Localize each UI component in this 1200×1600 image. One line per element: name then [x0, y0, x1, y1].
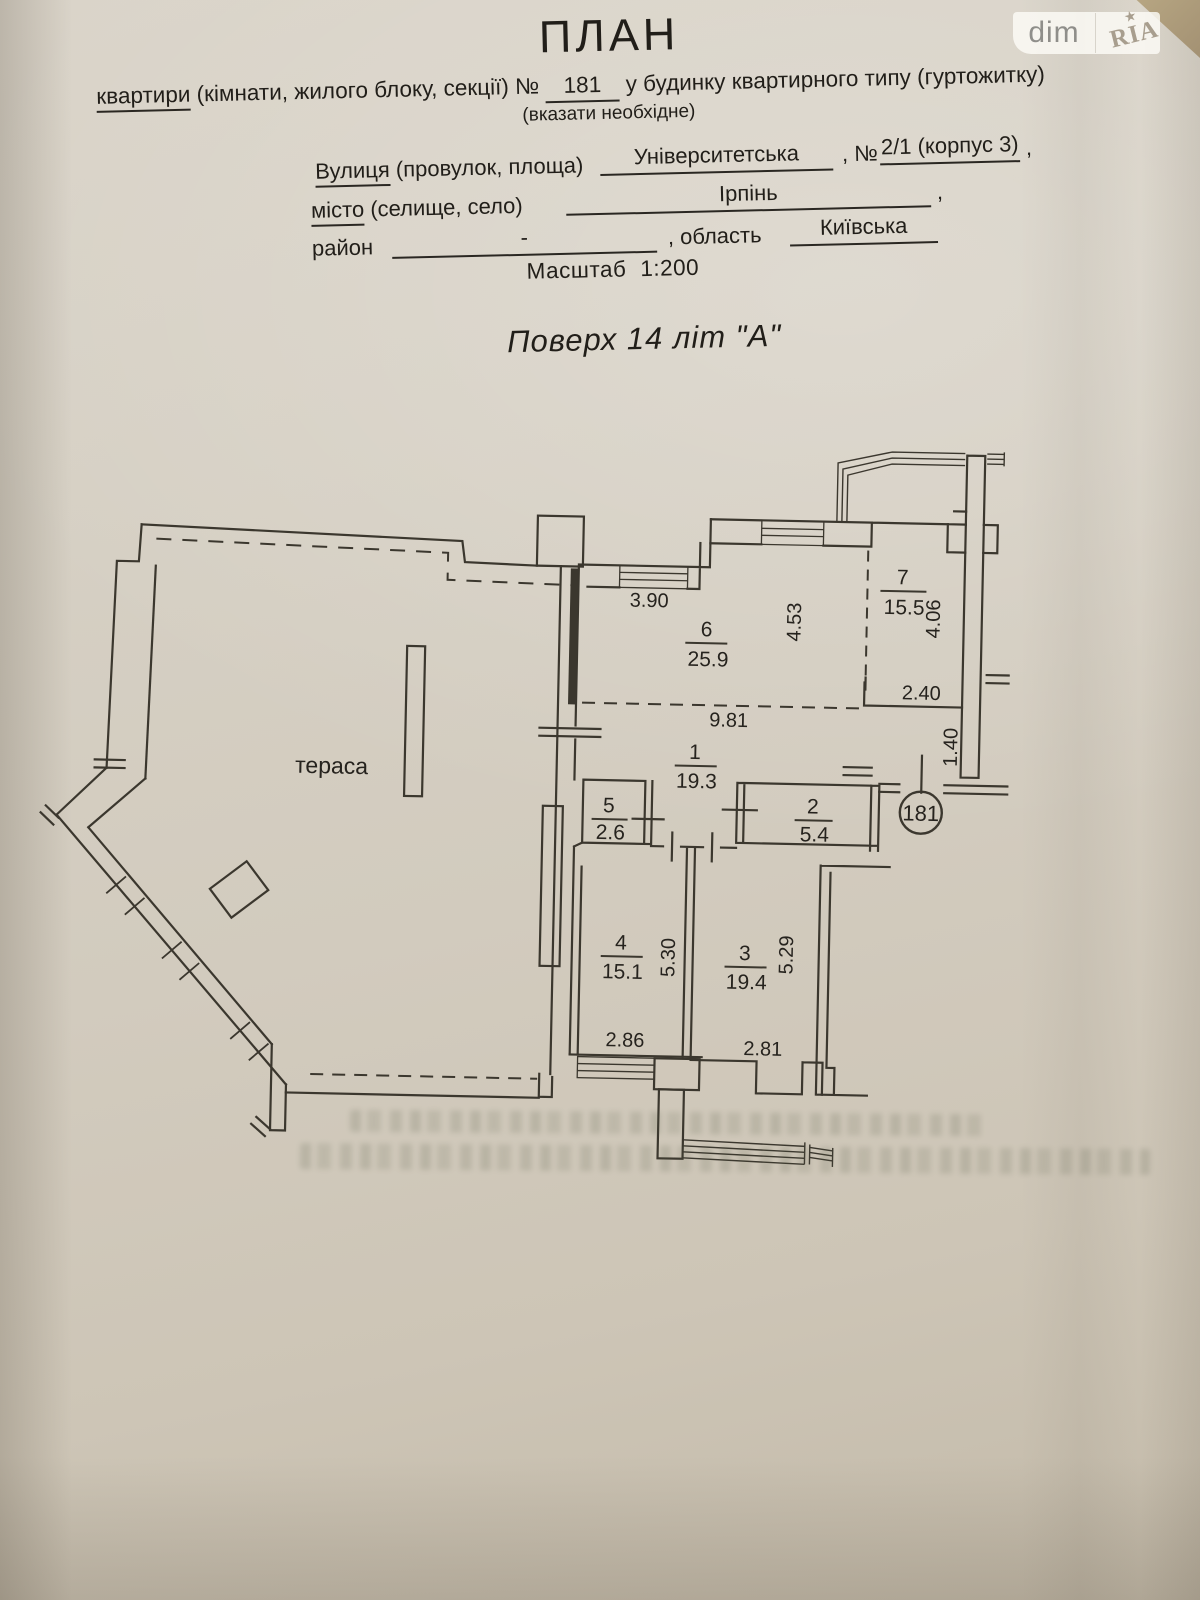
room-labels: 6 25.9 7 15.5 1 19.3 5 2.6 2 5.4 4 15.1 … [588, 560, 927, 998]
dimension-labels: 3.90 4.53 4.06 2.40 9.81 1.40 5.30 5.29 … [605, 589, 965, 1064]
room-7-area: 15.5 [883, 596, 924, 620]
dim-9-81: 9.81 [709, 709, 748, 732]
scanned-floor-plan-document: dim ★ RIA ПЛАН квартири (кімнати, жилого… [0, 0, 1200, 1600]
apartment-number-circle: 181 [899, 791, 942, 834]
floor-plan-area: 181 6 25.9 7 15.5 1 19.3 5 2.6 2 5.4 4 1… [0, 0, 1200, 1600]
dim-5-30: 5.30 [657, 938, 680, 977]
room-1-number: 1 [689, 741, 701, 764]
dim-4-53: 4.53 [783, 602, 806, 641]
floor-plan-svg: 181 6 25.9 7 15.5 1 19.3 5 2.6 2 5.4 4 1… [0, 0, 1200, 1600]
room-2-area: 5.4 [799, 823, 829, 847]
apartment-number-text: 181 [902, 800, 939, 826]
dim-1-40: 1.40 [940, 728, 963, 767]
dim-2-81: 2.81 [743, 1038, 782, 1061]
dim-4-06: 4.06 [922, 599, 945, 638]
bleed-through-text-band [350, 1110, 990, 1136]
dim-2-86: 2.86 [605, 1029, 644, 1052]
room-1-area: 19.3 [676, 770, 717, 794]
dim-5-29: 5.29 [775, 935, 798, 974]
dim-2-40: 2.40 [902, 682, 941, 705]
dim-3-90: 3.90 [629, 590, 668, 613]
room-2-number: 2 [807, 795, 819, 818]
room-6-area: 25.9 [687, 648, 728, 672]
room-4-area: 15.1 [602, 960, 643, 984]
terrace-label: тераса [295, 752, 369, 780]
room-4-number: 4 [615, 931, 627, 954]
room-5-number: 5 [603, 794, 615, 817]
room-6-number: 6 [701, 618, 713, 641]
room-3-area: 19.4 [726, 971, 768, 995]
dashed-boundaries [145, 536, 868, 1086]
room-3-number: 3 [739, 942, 751, 965]
room-7-number: 7 [897, 566, 909, 589]
walls [34, 436, 1015, 1165]
room-5-area: 2.6 [595, 821, 625, 845]
